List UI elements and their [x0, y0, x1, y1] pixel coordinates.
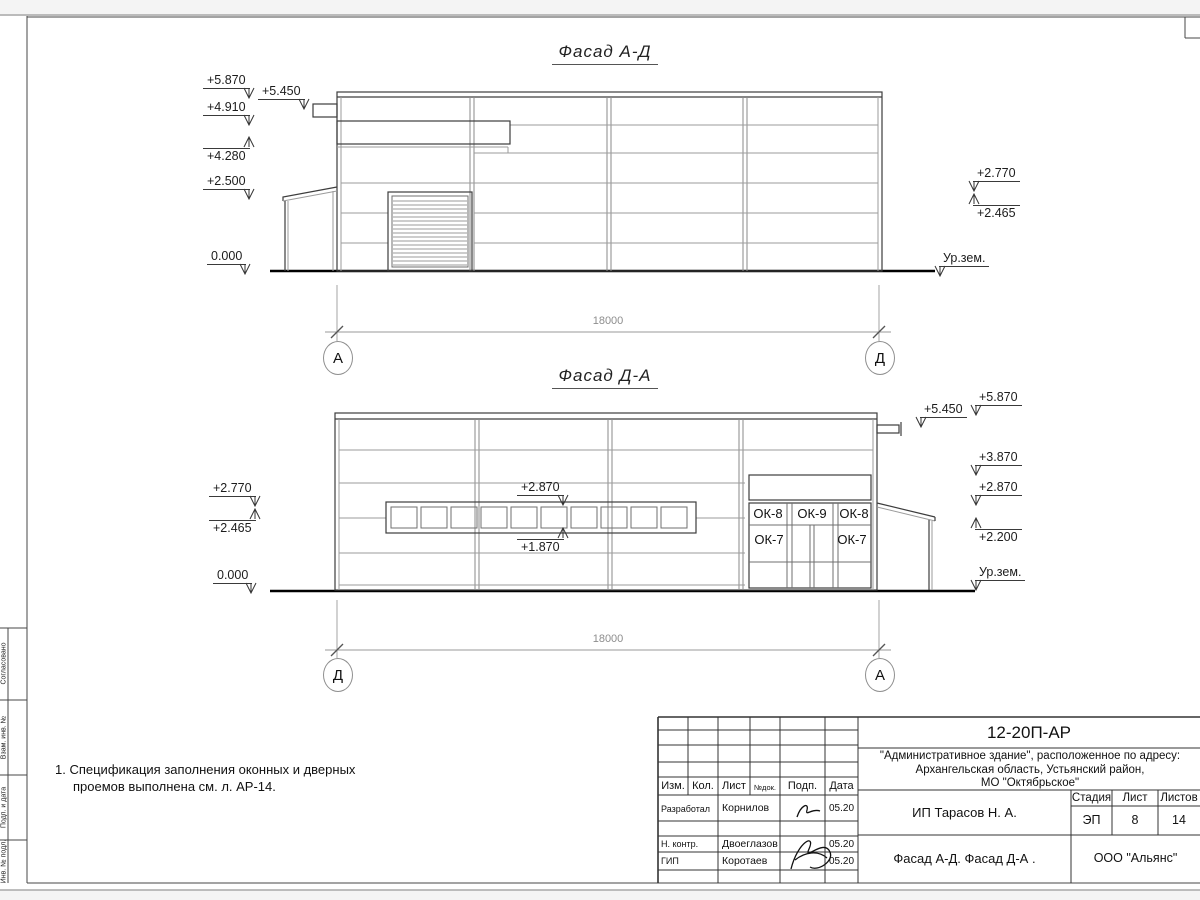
company-name: ООО "Альянс" — [1071, 851, 1200, 865]
level-arrow-icon — [244, 582, 258, 594]
roller-door — [388, 192, 472, 271]
level-arrow-icon — [933, 265, 947, 277]
elevation-mark: +2.770 — [209, 482, 256, 497]
sheets-label: Листов — [1158, 792, 1200, 804]
row-role: Н. контр. — [661, 839, 717, 849]
note-line: 1. Спецификация заполнения оконных и две… — [55, 762, 355, 777]
elevation-mark: Ур.зем. — [939, 252, 989, 267]
dimension-text: 18000 — [578, 633, 638, 645]
dimension-line — [325, 285, 891, 341]
sheet-label: Лист — [1112, 792, 1158, 804]
row-role: ГИП — [661, 856, 717, 866]
sheet-title: Фасад А-Д. Фасад Д-А . — [858, 851, 1071, 866]
elevation-mark: 0.000 — [213, 569, 252, 584]
elevation-mark: +3.870 — [975, 451, 1022, 466]
axis-bubble-д: Д — [323, 658, 353, 692]
stage-label: Стадия — [1071, 792, 1112, 804]
stage-value: ЭП — [1071, 813, 1112, 827]
dimension-text: 18000 — [578, 315, 638, 327]
window-label: ОК-9 — [790, 506, 834, 521]
note-line: проемов выполнена см. л. АР-14. — [73, 779, 276, 794]
level-arrow-icon — [556, 494, 570, 506]
level-arrow-icon — [242, 136, 256, 148]
elevation-mark: +5.870 — [203, 74, 250, 89]
elevation-mark: +5.450 — [920, 403, 967, 418]
sheets-total: 14 — [1158, 813, 1200, 827]
sheet-number: 8 — [1112, 813, 1158, 827]
col-header-list: Лист — [718, 780, 750, 792]
level-arrow-icon — [967, 193, 981, 205]
elevation-mark: +5.870 — [975, 391, 1022, 406]
col-header-podp: Подп. — [780, 780, 825, 792]
level-arrow-icon — [238, 263, 252, 275]
frame-margin-label: Инв. № подл. — [1, 831, 8, 891]
col-header-ndok: №док. — [750, 783, 780, 792]
elevation-value: +2.465 — [209, 520, 256, 535]
frame-margin-label: Взам. инв. № — [1, 707, 8, 767]
fascia-band — [337, 121, 510, 144]
building-outline — [337, 92, 882, 271]
dimension-line — [325, 600, 891, 658]
row-date: 05.20 — [825, 856, 858, 867]
porch-left — [283, 187, 337, 271]
elevation-mark: +4.280 — [203, 148, 250, 163]
level-arrow-icon — [248, 495, 262, 507]
row-date: 05.20 — [825, 839, 858, 850]
level-arrow-icon — [297, 98, 311, 110]
doc-code: 12-20П-АР — [858, 723, 1200, 743]
elevation-mark: +5.450 — [258, 85, 305, 100]
elevation-mark: +2.500 — [203, 175, 250, 190]
elevation-value: +1.870 — [517, 539, 564, 554]
window-label: ОК-7 — [830, 532, 874, 547]
elevation-value: +2.465 — [973, 205, 1020, 220]
level-arrow-icon — [556, 527, 570, 539]
window-label: ОК-7 — [747, 532, 791, 547]
col-header-data: Дата — [825, 780, 858, 792]
facade-ad-linework — [270, 92, 935, 341]
elevation-mark: Ур.зем. — [975, 566, 1025, 581]
axis-bubble-а: А — [323, 341, 353, 375]
vent-pipe — [877, 425, 899, 433]
level-arrow-icon — [248, 508, 262, 520]
row-name: Коротаев — [722, 855, 780, 867]
window-label: ОК-8 — [832, 506, 876, 521]
level-arrow-icon — [969, 517, 983, 529]
elevation-mark: +2.465 — [209, 520, 256, 535]
elevation-value: +4.280 — [203, 148, 250, 163]
level-arrow-icon — [967, 180, 981, 192]
address-line: Архангельская область, Устьянский район, — [860, 764, 1200, 776]
level-arrow-icon — [242, 114, 256, 126]
elevation-mark: +2.770 — [973, 167, 1020, 182]
axis-bubble-а: А — [865, 658, 895, 692]
porch-right — [877, 503, 935, 590]
row-role: Разработал — [661, 804, 717, 814]
level-arrow-icon — [914, 416, 928, 428]
facade-ad-title: Фасад А-Д — [495, 42, 715, 65]
level-arrow-icon — [969, 404, 983, 416]
row-name: Двоеглазов — [722, 838, 780, 850]
row-date: 05.20 — [825, 803, 858, 814]
elevation-mark: +2.870 — [975, 481, 1022, 496]
level-arrow-icon — [969, 494, 983, 506]
elevation-mark: +2.870 — [517, 481, 564, 496]
drawing-sheet: Фасад А-Д Фасад Д-А 1. Спецификация запо… — [0, 0, 1200, 900]
frame-margin-label: Подп. и дата — [1, 777, 8, 837]
elevation-mark: +4.910 — [203, 101, 250, 116]
client-name: ИП Тарасов Н. А. — [858, 805, 1071, 820]
ribbon-windows — [386, 502, 696, 533]
axis-bubble-д: Д — [865, 341, 895, 375]
elevation-mark: +2.200 — [975, 529, 1022, 544]
signature — [797, 806, 820, 817]
elevation-mark: 0.000 — [207, 250, 246, 265]
elevation-mark: +2.465 — [973, 205, 1020, 220]
frame-margin-label: Согласовано — [1, 634, 8, 694]
vent-pipe — [313, 104, 337, 117]
address-line: МО "Октябрьское" — [860, 777, 1200, 789]
address-line: "Административное здание", расположенное… — [860, 750, 1200, 762]
level-arrow-icon — [242, 188, 256, 200]
level-arrow-icon — [969, 464, 983, 476]
level-arrow-icon — [242, 87, 256, 99]
facade-da-title: Фасад Д-А — [495, 366, 715, 389]
col-header-izm: Изм. — [658, 780, 688, 792]
elevation-value: +2.200 — [975, 529, 1022, 544]
level-arrow-icon — [969, 579, 983, 591]
col-header-kol: Кол. — [688, 780, 718, 792]
row-name: Корнилов — [722, 802, 780, 814]
elevation-mark: +1.870 — [517, 539, 564, 554]
window-label: ОК-8 — [746, 506, 790, 521]
